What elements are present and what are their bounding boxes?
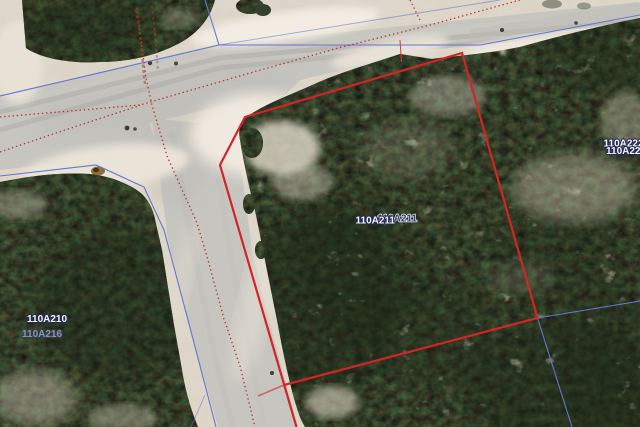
- svg-text:110A211: 110A211: [356, 216, 396, 227]
- svg-text:110A221: 110A221: [606, 146, 640, 157]
- svg-text:110A210: 110A210: [27, 314, 67, 325]
- svg-text:110A216: 110A216: [22, 329, 62, 340]
